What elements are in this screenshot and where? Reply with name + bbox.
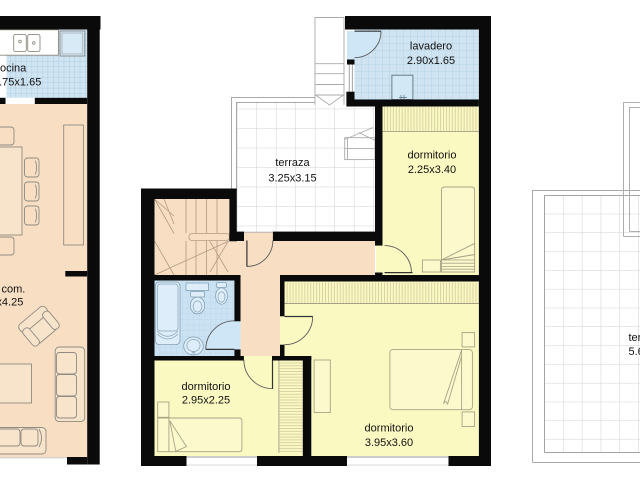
svg-text:lavadero: lavadero bbox=[410, 41, 452, 53]
svg-text:dormitorio: dormitorio bbox=[182, 381, 231, 393]
svg-text:2.25x3.40: 2.25x3.40 bbox=[408, 164, 456, 176]
svg-text:3.75x1.65: 3.75x1.65 bbox=[0, 76, 41, 88]
svg-text:dormitorio: dormitorio bbox=[365, 423, 414, 435]
svg-text:3.25x3.15: 3.25x3.15 bbox=[268, 173, 316, 185]
svg-text:terraza: terraza bbox=[275, 157, 310, 169]
svg-text:5.60x3.00: 5.60x3.00 bbox=[629, 346, 640, 358]
svg-text:terraza: terraza bbox=[629, 332, 640, 344]
svg-text:3.95x3.60: 3.95x3.60 bbox=[365, 437, 413, 449]
svg-text:dormitorio: dormitorio bbox=[408, 150, 457, 162]
svg-text:2.90x1.65: 2.90x1.65 bbox=[407, 55, 455, 67]
svg-text:cocina: cocina bbox=[0, 63, 27, 75]
svg-text:4.70x4.25: 4.70x4.25 bbox=[0, 297, 23, 309]
svg-text:estar com.: estar com. bbox=[0, 284, 25, 296]
svg-text:2.95x2.25: 2.95x2.25 bbox=[182, 394, 230, 406]
